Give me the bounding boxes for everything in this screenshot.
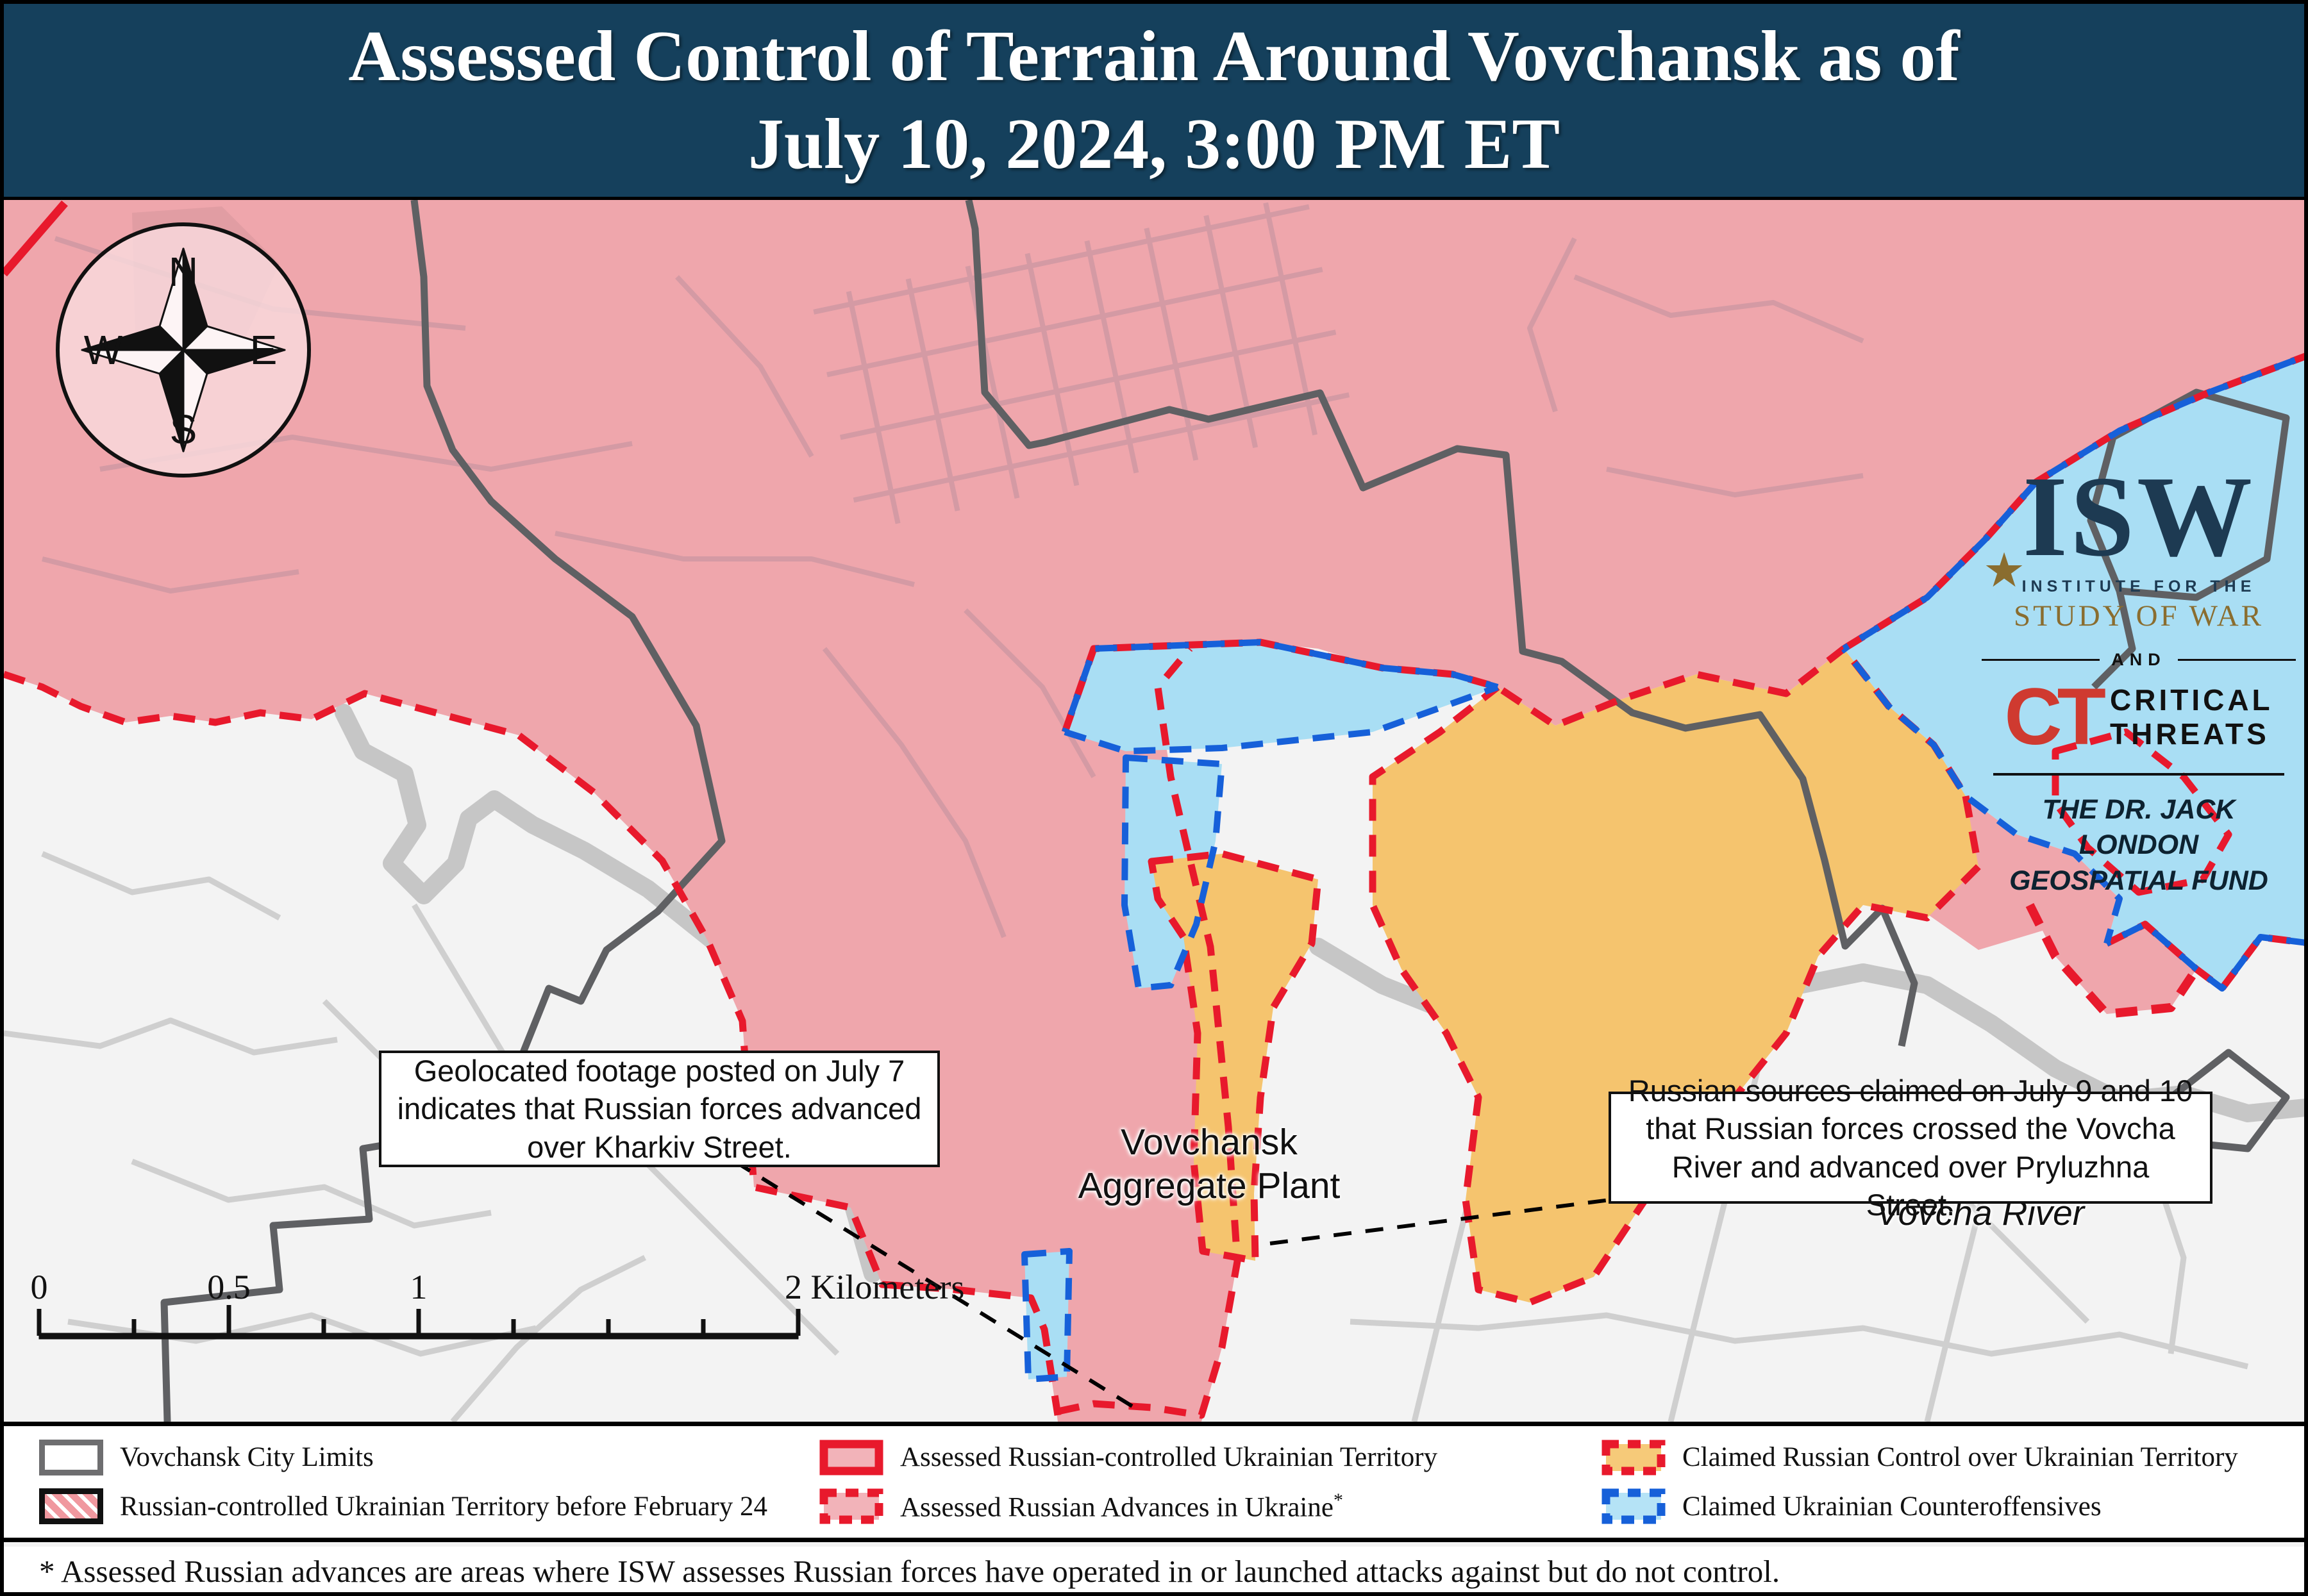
scale-bar: 0 0.5 1 2 Kilometers <box>4 1269 1004 1346</box>
scale-2km-label: 2 Kilometers <box>785 1269 964 1306</box>
isw-study-of-war-label: STUDY OF WAR <box>1982 599 2296 633</box>
ukrainian-counteroffensives-swatch <box>1601 1488 1666 1524</box>
callout-kharkiv-street: Geolocated footage posted on July 7 indi… <box>379 1051 940 1167</box>
compass-w-label: W <box>84 327 123 373</box>
isw-logo-text: ISW★ <box>2023 461 2255 571</box>
advances-asterisk: * <box>1334 1490 1343 1511</box>
terrain-control-map <box>4 200 2308 1422</box>
legend-item-ukrainian-counteroffensives: Claimed Ukrainian Counteroffensives <box>1601 1488 2238 1524</box>
compass-rose-icon: N E S W <box>52 218 315 481</box>
ct-monogram-icon: CT <box>2004 681 2101 754</box>
critical-threats-logo: CT CRITICAL THREATS <box>1982 681 2296 754</box>
legend-item-claimed-russian: Claimed Russian Control over Ukrainian T… <box>1601 1440 2238 1475</box>
logo-divider <box>1993 773 2284 776</box>
compass-s-label: S <box>170 406 197 453</box>
legend-item-pre-feb24: Russian-controlled Ukrainian Territory b… <box>39 1488 767 1524</box>
map-canvas: N E S W ISW★ INSTITUTE FOR THE STUDY OF … <box>4 200 2308 1422</box>
aggregate-plant-label: Vovchansk Aggregate Plant <box>1055 1120 1363 1208</box>
isw-institute-label: INSTITUTE FOR THE <box>1982 578 2296 596</box>
legend-item-russian-advances: Assessed Russian Advances in Ukraine* <box>819 1488 1437 1524</box>
pre-feb24-swatch <box>39 1488 103 1524</box>
scale-0-label: 0 <box>31 1269 48 1306</box>
isw-map-page: Assessed Control of Terrain Around Vovch… <box>0 0 2308 1596</box>
geospatial-fund-label: THE DR. JACK LONDON GEOSPATIAL FUND <box>1982 792 2296 900</box>
compass-n-label: N <box>169 249 198 295</box>
legend-item-russian-controlled: Assessed Russian-controlled Ukrainian Te… <box>819 1440 1437 1475</box>
legend-item-city-limits: Vovchansk City Limits <box>39 1440 767 1475</box>
legend: Vovchansk City Limits Russian-controlled… <box>4 1422 2304 1542</box>
scale-1-label: 1 <box>410 1269 428 1306</box>
isw-ct-logo: ISW★ INSTITUTE FOR THE STUDY OF WAR AND … <box>1982 461 2296 899</box>
russian-controlled-swatch <box>819 1440 883 1475</box>
title-bar: Assessed Control of Terrain Around Vovch… <box>4 4 2304 200</box>
critical-threats-label: CRITICAL THREATS <box>2110 683 2273 751</box>
russian-advances-swatch <box>819 1488 883 1524</box>
claimed-russian-swatch <box>1601 1440 1666 1475</box>
callout-pryluzhna-street: Russian sources claimed on July 9 and 10… <box>1609 1092 2212 1204</box>
city-limits-swatch <box>39 1440 103 1475</box>
map-title-line2: July 10, 2024, 3:00 PM ET <box>748 101 1560 188</box>
and-separator: AND <box>1982 650 2296 670</box>
isw-star-icon: ★ <box>1983 548 2028 593</box>
advances-footnote: * Assessed Russian advances are areas wh… <box>4 1547 2304 1596</box>
compass-e-label: E <box>250 327 278 373</box>
map-title-line1: Assessed Control of Terrain Around Vovch… <box>348 13 1959 101</box>
scale-05-label: 0.5 <box>207 1269 251 1306</box>
